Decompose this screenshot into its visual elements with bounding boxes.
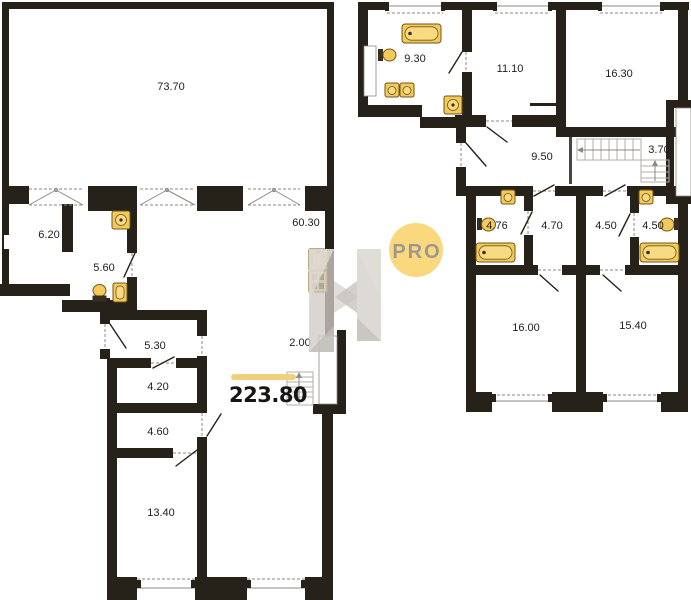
sink-icon [113, 283, 127, 302]
room-label: 11.10 [497, 63, 524, 75]
door-icon [105, 324, 126, 349]
right-plan: 9.30 11.10 16.30 9.50 3.70 4.76 4.70 4.5… [358, 2, 691, 412]
bay-window-glazing [676, 108, 691, 196]
room-label: 4.60 [147, 426, 168, 438]
washing-machine-icon [444, 96, 462, 114]
bathtub-icon [402, 24, 441, 43]
bathtub-icon [476, 243, 515, 262]
door-icon [533, 185, 555, 196]
sink-icon [639, 190, 653, 204]
window-icon [598, 2, 664, 13]
door-icon [486, 121, 512, 142]
window-icon [248, 188, 300, 205]
door-icon [600, 270, 625, 291]
window-icon [29, 188, 83, 205]
window-icon [492, 394, 552, 402]
room-label: 9.30 [404, 53, 425, 65]
room-label: 5.30 [144, 340, 165, 352]
window-icon [385, 2, 445, 13]
room-label: 60.30 [292, 217, 320, 229]
room-label: 3.70 [648, 144, 669, 156]
wall-niche [4, 235, 15, 249]
room-label: 16.30 [605, 68, 633, 80]
room-label: 4.70 [541, 220, 562, 232]
door-icon [151, 357, 176, 368]
door-icon [603, 185, 627, 196]
door-icon [619, 213, 634, 237]
toilet-icon [93, 285, 107, 302]
window-icon [493, 2, 552, 13]
room-label: 15.40 [619, 320, 647, 332]
room-label: 16.00 [512, 322, 540, 334]
room-label: 13.40 [147, 507, 175, 519]
door-icon [202, 413, 221, 437]
sink-icon [400, 83, 414, 97]
pro-badge-label: PRO [392, 241, 441, 263]
room-label: 4.20 [147, 381, 168, 393]
left-plan: 73.70 6.20 5.60 60.30 5.30 4.20 4.60 13.… [0, 2, 346, 600]
floor-plan-canvas: 73.70 6.20 5.60 60.30 5.30 4.20 4.60 13.… [0, 0, 691, 600]
total-area-annotation: 223.80 [229, 374, 307, 407]
sink-icon [501, 190, 515, 204]
total-area-underline [231, 374, 296, 380]
door-icon [449, 52, 466, 73]
door-icon [124, 253, 135, 277]
room-label: 2.00 [289, 337, 310, 349]
total-area-value: 223.80 [229, 383, 307, 407]
sink-icon [385, 83, 399, 97]
door-icon [521, 211, 532, 235]
pro-badge: PRO [389, 223, 443, 277]
washing-machine-icon [112, 211, 130, 229]
room-label: 4.50 [595, 220, 616, 232]
toilet-icon [378, 49, 396, 61]
room-label: 5.60 [93, 262, 114, 274]
room-label: 4.76 [486, 220, 507, 232]
door-icon [461, 143, 486, 167]
door-icon [538, 270, 562, 291]
room-label: 9.50 [531, 151, 552, 163]
window-icon [247, 579, 305, 588]
room-label: 6.20 [38, 229, 59, 241]
floor-plan-page: 73.70 6.20 5.60 60.30 5.30 4.20 4.60 13.… [0, 0, 691, 600]
duct-niche [364, 46, 376, 96]
window-icon [140, 188, 195, 205]
bathtub-icon [640, 243, 679, 262]
room-label: 4.50 [642, 220, 663, 232]
window-icon [603, 394, 661, 402]
window-icon [137, 579, 195, 588]
room-label: 73.70 [157, 81, 185, 93]
door-icon [173, 450, 198, 466]
